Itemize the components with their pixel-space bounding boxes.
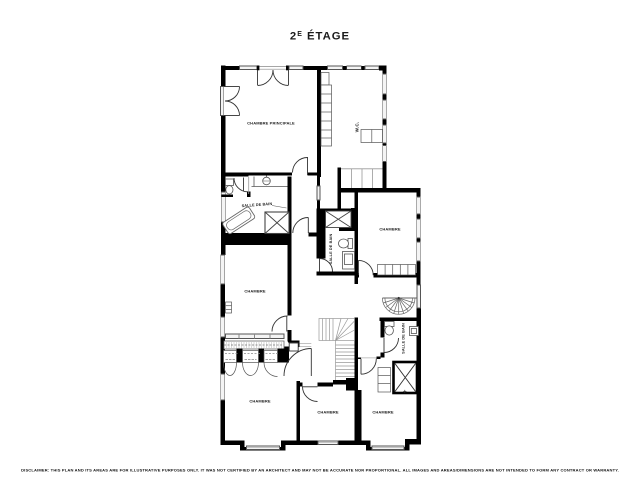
svg-text:W.C.: W.C. [355,122,360,133]
svg-text:SALLE DE BAIN: SALLE DE BAIN [402,323,406,354]
svg-text:CHAMBRE PRINCIPALE: CHAMBRE PRINCIPALE [247,121,295,126]
svg-text:SALLE DE BAIN: SALLE DE BAIN [329,234,333,265]
svg-text:CHAMBRE: CHAMBRE [379,227,400,232]
svg-text:CHAMBRE: CHAMBRE [317,410,338,415]
svg-text:CHAMBRE: CHAMBRE [372,410,393,415]
svg-text:CHAMBRE: CHAMBRE [244,289,265,294]
svg-text:CHAMBRE: CHAMBRE [249,399,270,404]
svg-text:DISCLAIMER: THIS PLAN AND ITS: DISCLAIMER: THIS PLAN AND ITS AREAS ARE … [21,468,619,473]
